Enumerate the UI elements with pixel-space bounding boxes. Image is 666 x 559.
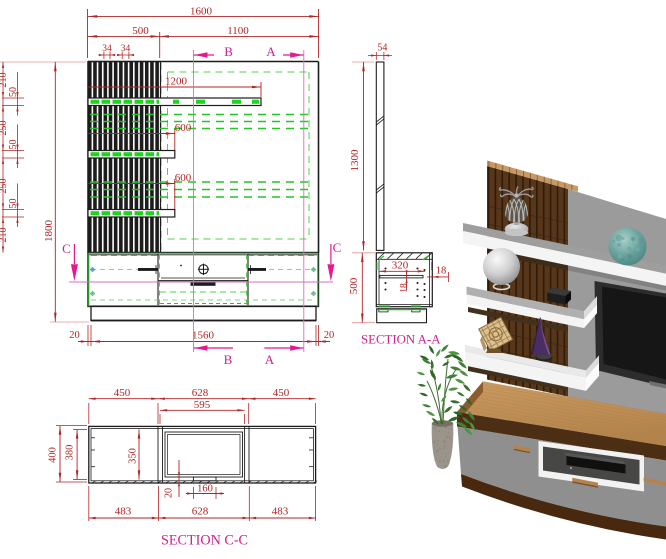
svg-text:380: 380	[65, 445, 76, 461]
svg-text:595: 595	[194, 399, 211, 411]
svg-text:500: 500	[132, 25, 149, 37]
svg-text:C: C	[333, 240, 342, 255]
svg-text:400: 400	[48, 447, 59, 463]
svg-text:B: B	[224, 44, 233, 59]
svg-text:250: 250	[0, 121, 9, 136]
svg-text:483: 483	[115, 506, 132, 518]
svg-text:20: 20	[69, 330, 80, 341]
svg-text:18: 18	[436, 266, 447, 277]
svg-text:210: 210	[0, 228, 9, 243]
svg-text:483: 483	[272, 506, 289, 518]
svg-text:SECTION A-A: SECTION A-A	[361, 332, 441, 347]
svg-text:20: 20	[164, 488, 175, 498]
svg-text:600: 600	[175, 172, 192, 184]
svg-text:628: 628	[192, 387, 209, 399]
svg-text:SECTION C-C: SECTION C-C	[161, 533, 248, 549]
svg-text:500: 500	[348, 277, 360, 294]
svg-text:1200: 1200	[165, 76, 188, 88]
svg-text:1600: 1600	[190, 6, 213, 18]
svg-text:50: 50	[8, 140, 19, 150]
svg-text:B: B	[224, 352, 233, 367]
svg-text:250: 250	[0, 179, 9, 194]
svg-text:1800: 1800	[43, 220, 55, 243]
svg-text:320: 320	[392, 260, 409, 272]
svg-text:1560: 1560	[192, 330, 215, 342]
svg-text:18: 18	[400, 283, 410, 293]
svg-text:1100: 1100	[227, 25, 249, 37]
svg-text:50: 50	[8, 199, 19, 209]
svg-text:A: A	[265, 352, 275, 367]
svg-text:1300: 1300	[349, 149, 361, 172]
svg-text:600: 600	[175, 122, 192, 134]
svg-text:50: 50	[8, 87, 19, 97]
svg-text:A: A	[266, 44, 276, 59]
svg-text:450: 450	[114, 387, 131, 399]
svg-text:450: 450	[273, 387, 290, 399]
svg-text:54: 54	[377, 43, 387, 54]
svg-text:160: 160	[197, 484, 213, 495]
svg-text:350: 350	[128, 448, 139, 464]
svg-text:20: 20	[324, 330, 335, 341]
svg-text:210: 210	[0, 73, 9, 88]
svg-text:628: 628	[192, 506, 209, 518]
svg-text:C: C	[62, 241, 71, 256]
